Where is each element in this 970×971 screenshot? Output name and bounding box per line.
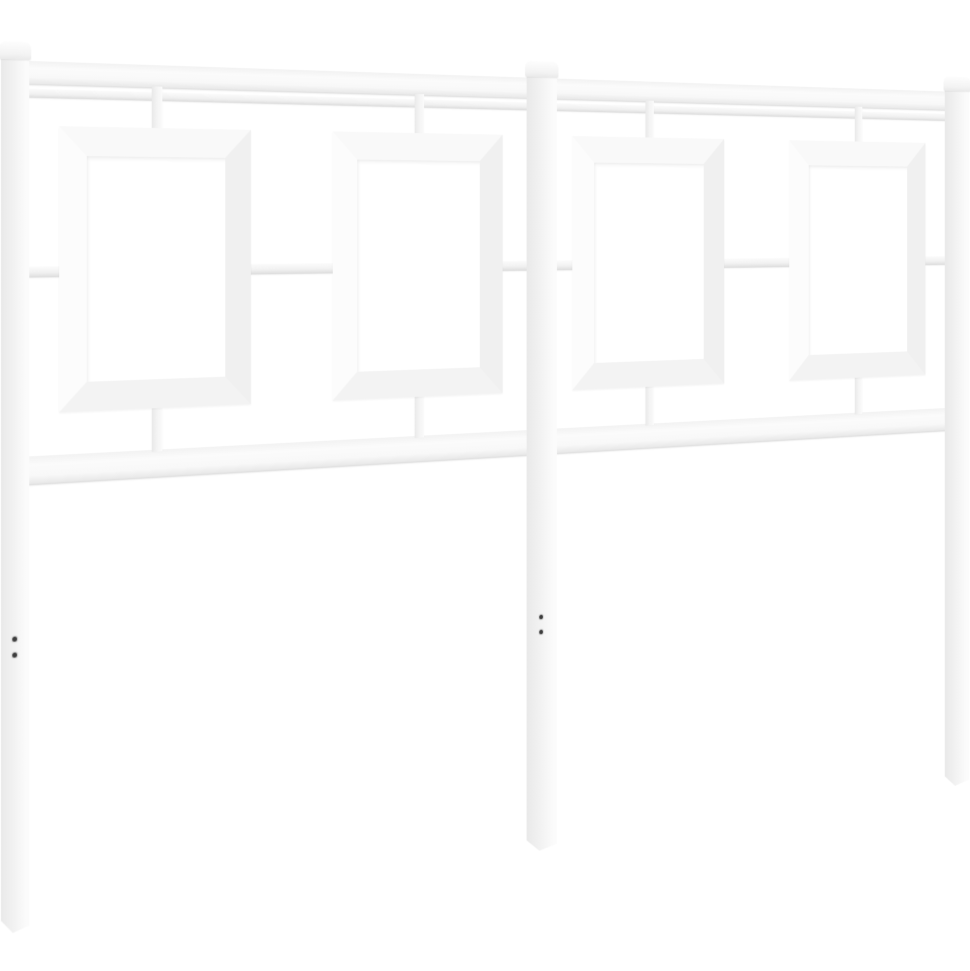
mounting-hole xyxy=(539,630,543,635)
panel-2-bottom-connector xyxy=(415,395,424,438)
headboard-product-photo xyxy=(0,0,970,971)
mounting-hole xyxy=(539,615,543,620)
decor-panel-2 xyxy=(333,131,503,400)
mid-rail-segment-3 xyxy=(503,261,527,271)
panel-1-top-connector xyxy=(152,86,163,130)
left-post-cap xyxy=(0,41,31,60)
mid-rail-segment-1 xyxy=(29,266,59,277)
right-post xyxy=(945,84,970,788)
panel-2-top-connector xyxy=(415,94,424,135)
headboard-3d-wrapper xyxy=(0,0,970,971)
mid-rail-segment-6 xyxy=(925,256,944,265)
center-post xyxy=(527,69,557,853)
panel-4-bottom-connector xyxy=(855,376,863,415)
panel-4-top-connector xyxy=(855,106,863,143)
panel-3-bottom-connector xyxy=(645,385,653,426)
decor-panel-1 xyxy=(59,126,251,412)
mid-rail-segment-2 xyxy=(251,263,333,274)
left-post xyxy=(1,50,29,935)
panel-1-bottom-connector xyxy=(152,406,163,452)
mounting-hole xyxy=(12,636,17,641)
mounting-hole xyxy=(12,652,17,657)
center-post-cap xyxy=(525,61,558,78)
decor-panel-4 xyxy=(789,140,925,380)
mid-rail-segment-4 xyxy=(557,260,572,270)
panel-3-top-connector xyxy=(645,100,653,139)
decor-panel-3 xyxy=(572,136,724,390)
mid-rail-segment-5 xyxy=(724,258,789,268)
right-post-cap xyxy=(944,76,970,91)
